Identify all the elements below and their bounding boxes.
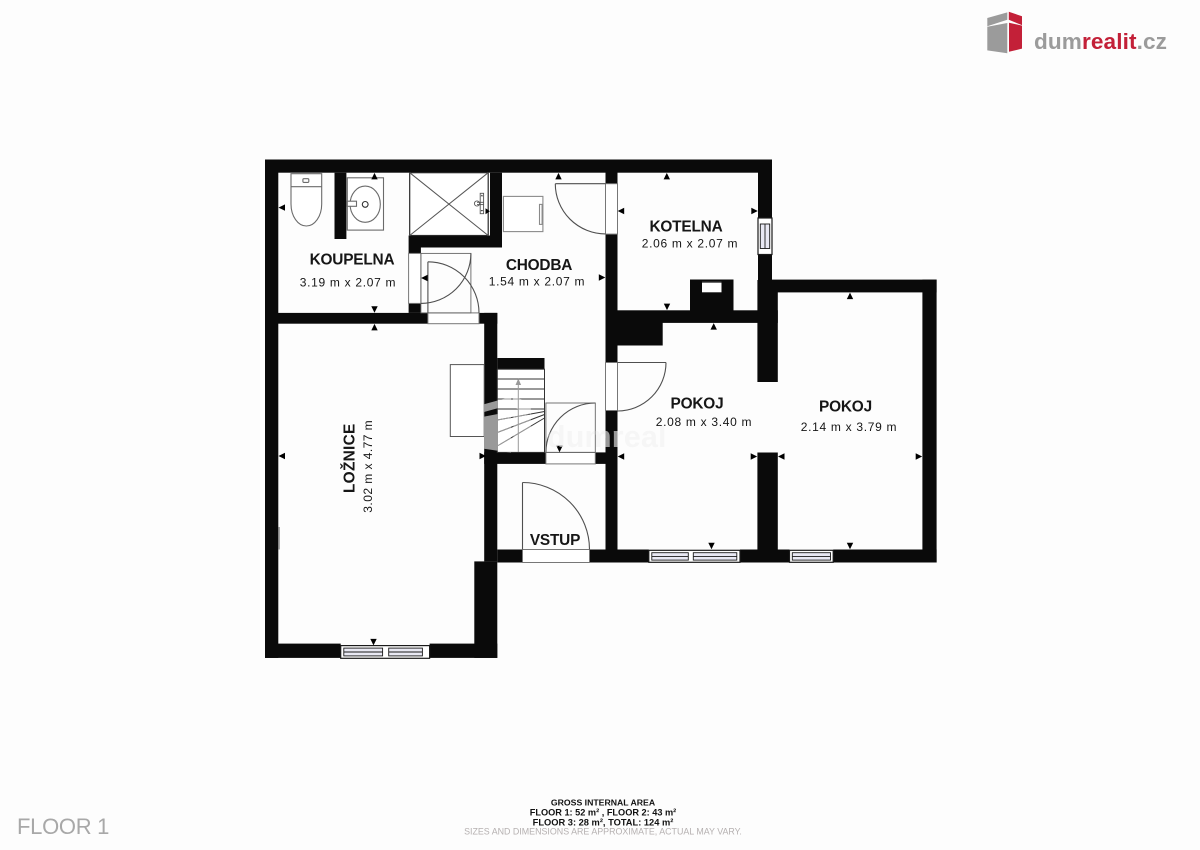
svg-text:POKOJ: POKOJ	[819, 399, 872, 416]
svg-text:GROSS INTERNAL AREA: GROSS INTERNAL AREA	[551, 798, 656, 808]
svg-text:POKOJ: POKOJ	[671, 395, 724, 412]
svg-text:3.02 m x 4.77 m: 3.02 m x 4.77 m	[361, 420, 375, 513]
svg-text:3.19 m x 2.07 m: 3.19 m x 2.07 m	[300, 276, 397, 290]
svg-text:KOTELNA: KOTELNA	[650, 219, 723, 236]
svg-text:dumrealit.cz: dumrealit.cz	[1034, 29, 1167, 54]
svg-text:SIZES AND DIMENSIONS ARE APPRO: SIZES AND DIMENSIONS ARE APPROXIMATE, AC…	[464, 827, 742, 837]
svg-text:2.14 m x 3.79 m: 2.14 m x 3.79 m	[801, 420, 898, 434]
svg-text:FLOOR 1: FLOOR 1	[17, 814, 109, 839]
svg-text:FLOOR 1: 52 m² , FLOOR 2: 43 m: FLOOR 1: 52 m² , FLOOR 2: 43 m²	[530, 808, 677, 818]
svg-text:2.08 m x 3.40 m: 2.08 m x 3.40 m	[656, 415, 753, 429]
svg-text:KOUPELNA: KOUPELNA	[310, 252, 395, 269]
svg-text:1.54 m x 2.07 m: 1.54 m x 2.07 m	[489, 275, 586, 289]
svg-text:CHODBA: CHODBA	[506, 257, 572, 274]
svg-text:2.06 m x 2.07 m: 2.06 m x 2.07 m	[642, 237, 739, 251]
svg-text:LOŽNICE: LOŽNICE	[341, 423, 359, 493]
svg-text:VSTUP: VSTUP	[530, 532, 580, 549]
